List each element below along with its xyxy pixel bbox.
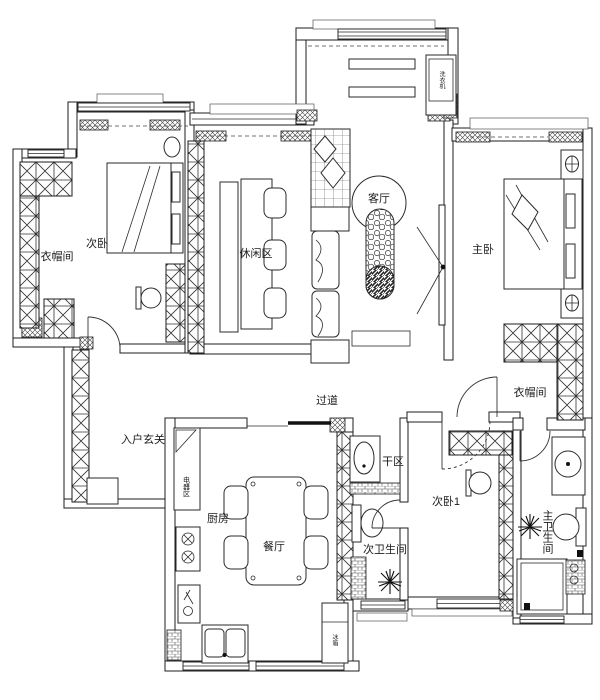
refrigerator-label: 冰箱 — [331, 633, 338, 647]
tv — [417, 205, 445, 325]
entry-bench — [87, 478, 118, 504]
balcony: 洗衣机 — [349, 55, 456, 115]
counter-corner — [167, 630, 181, 660]
master-bed — [504, 179, 582, 289]
label-living-room: 客厅 — [368, 191, 390, 205]
refrigerator: 冰箱 — [322, 603, 348, 663]
label-dry-area: 干区 — [382, 456, 404, 468]
kitchen-sliding-door — [247, 423, 331, 426]
label-appliance-zone: 电器区 — [183, 476, 191, 498]
label-leisure-area: 休闲区 — [240, 246, 273, 260]
door-master-bath — [520, 431, 550, 461]
label-master-bathroom: 主卫生间 — [541, 510, 554, 555]
rug-stripe — [366, 266, 394, 299]
label-cloakroom-left: 衣帽间 — [41, 249, 74, 263]
hall-desk — [352, 331, 410, 346]
master-toilet — [553, 508, 586, 546]
threshold — [350, 483, 400, 494]
floor-plan-page: 洗衣机 — [0, 0, 600, 700]
chair — [466, 470, 491, 496]
bedroom1-furniture — [466, 470, 491, 496]
label-bedroom-1: 次卧1 — [432, 494, 460, 508]
label-entry-foyer: 入户玄关 — [121, 432, 165, 446]
door-cloakroom-right — [457, 377, 497, 417]
cabinet — [311, 340, 349, 363]
appliance-cabinet — [174, 428, 200, 510]
label-kitchen: 厨房 — [207, 512, 229, 525]
label-master-bedroom: 主卧 — [472, 243, 494, 256]
sofa-seat — [312, 291, 339, 337]
label-hallway: 过道 — [316, 393, 338, 407]
stove — [176, 527, 200, 571]
label-dining-room: 餐厅 — [263, 539, 285, 553]
desk-chair — [136, 287, 161, 309]
label-cloakroom-right: 衣帽间 — [514, 385, 547, 399]
washing-machine-label: 洗衣机 — [438, 70, 445, 90]
utensil-panel — [178, 585, 200, 623]
mirror — [164, 137, 180, 157]
dry-area-sink — [350, 436, 380, 482]
bed — [107, 163, 183, 253]
washing-machine: 洗衣机 — [426, 55, 456, 115]
kitchen-furniture: 冰箱 — [167, 428, 348, 663]
floor-drain-plant — [518, 514, 542, 539]
master-sink — [552, 437, 585, 495]
foyer-furniture — [87, 478, 118, 504]
kitchen-sink — [202, 625, 248, 663]
shower-wall — [351, 557, 366, 599]
floor-plan-svg: 洗衣机 — [0, 0, 600, 700]
label-bedroom-2: 次卧 — [86, 236, 108, 250]
dining-set — [224, 477, 328, 585]
side-table — [311, 207, 349, 231]
shower-niche — [566, 560, 585, 594]
floor-drain-plant — [378, 569, 402, 594]
living-room-furniture — [311, 129, 445, 363]
master-bedroom-furniture — [504, 150, 583, 318]
label-guest-bathroom: 次卫生间 — [363, 542, 407, 556]
